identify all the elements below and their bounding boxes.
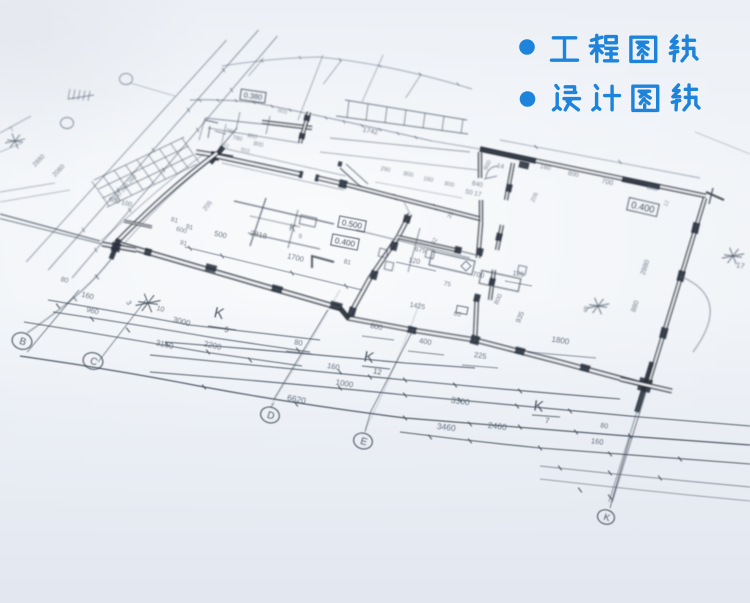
svg-text:160: 160 (591, 436, 605, 446)
svg-text:17: 17 (736, 260, 746, 270)
svg-text:80: 80 (600, 423, 609, 431)
svg-text:12: 12 (373, 366, 383, 376)
svg-text:80: 80 (294, 337, 304, 347)
